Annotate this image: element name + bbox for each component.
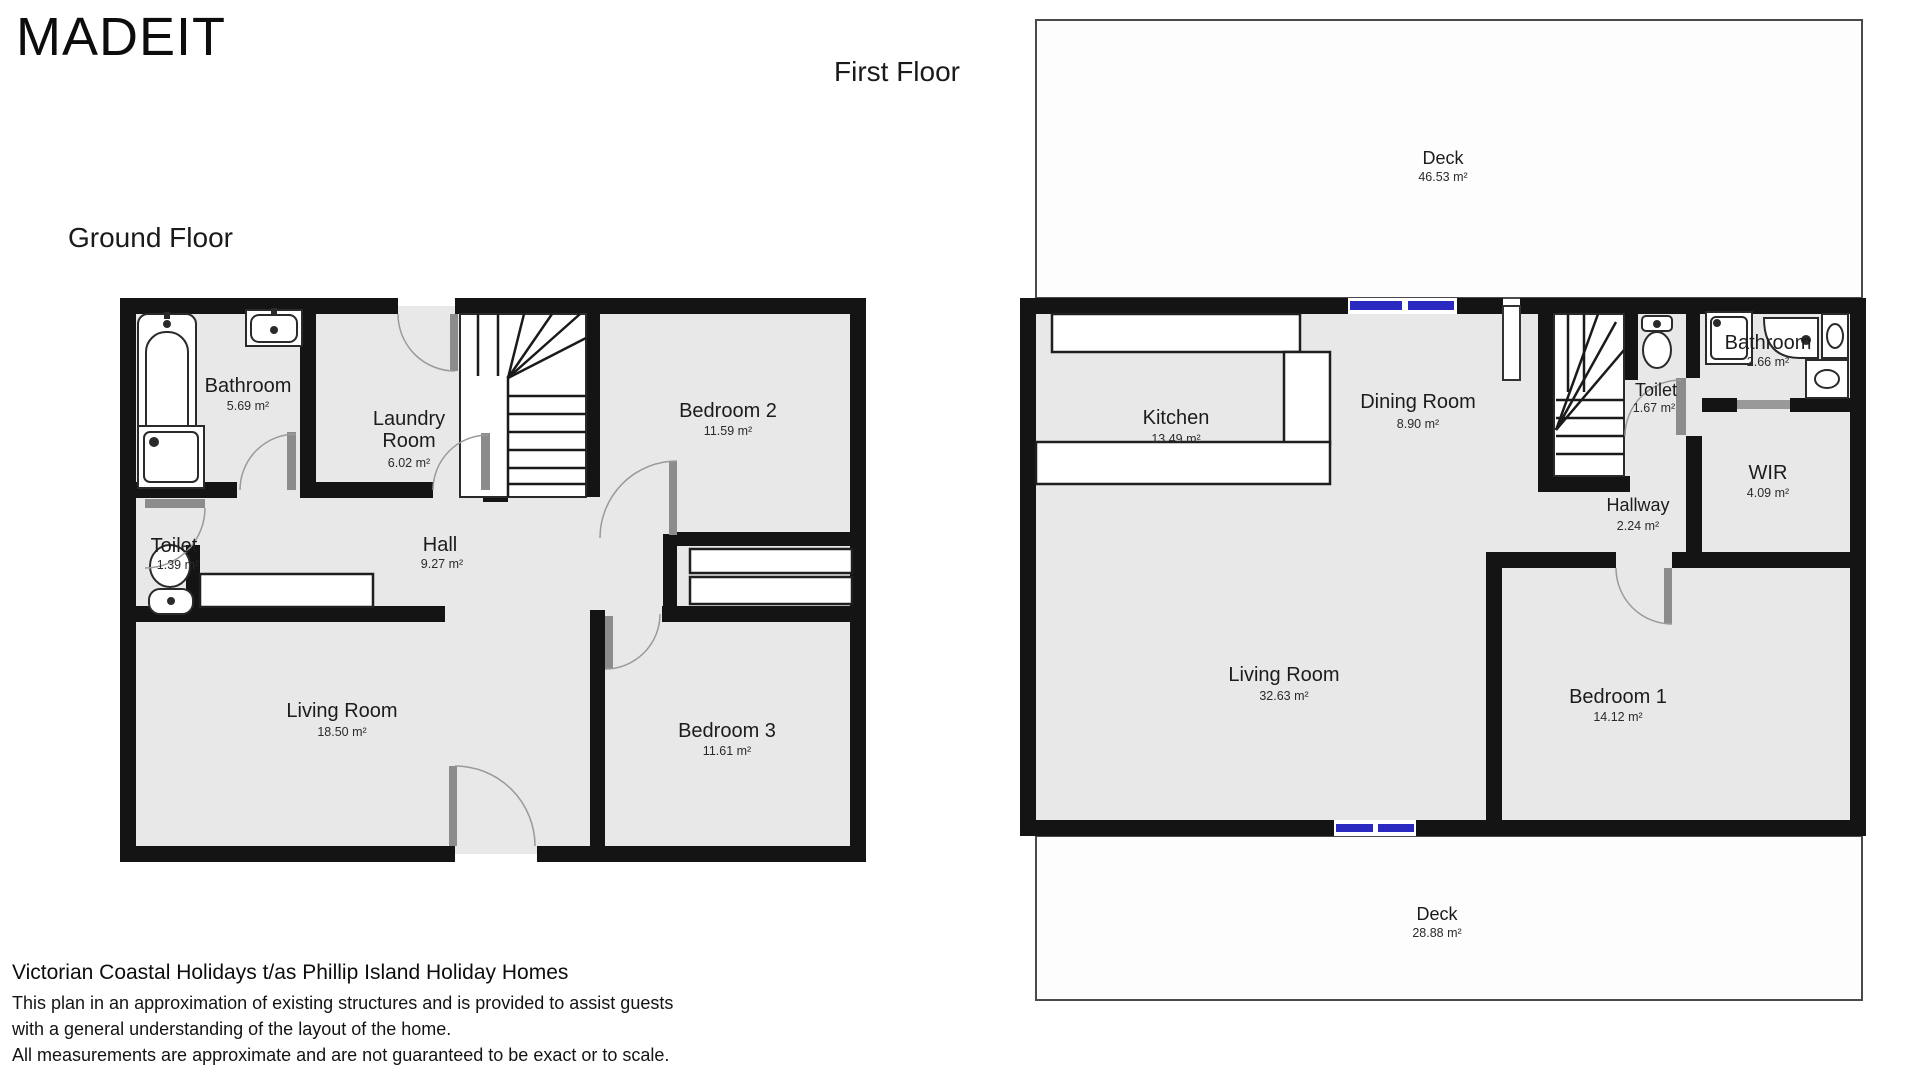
ff-toilet-area: 1.67 m² xyxy=(1633,401,1675,415)
gf-bedroom2-area: 11.59 m² xyxy=(704,424,752,438)
ground-floor-plan: Bathroom 5.69 m² Laundry Room 6.02 m² Be… xyxy=(120,298,866,862)
ff-deck-bottom-label: Deck xyxy=(1416,904,1458,924)
ff-deck-top-label: Deck xyxy=(1422,148,1464,168)
gf-bedroom3-area: 11.61 m² xyxy=(703,744,751,758)
footer-company-name: Victorian Coastal Holidays t/as Phillip … xyxy=(12,960,673,986)
first-floor-plan: Deck 46.53 m² Kitchen 13.49 m² Dining Ro… xyxy=(1020,20,1866,1000)
gf-bathroom-area: 5.69 m² xyxy=(227,399,269,413)
ff-bathroom-label: Bathroom xyxy=(1725,332,1812,354)
gf-hall-area: 9.27 m² xyxy=(421,557,463,571)
ff-wir-area: 4.09 m² xyxy=(1747,486,1789,500)
ground-floor-stairs xyxy=(460,314,586,497)
ff-wir-label: WIR xyxy=(1749,462,1788,484)
gf-toilet-area: 1.39 m² xyxy=(157,558,199,572)
ff-living-area: 32.63 m² xyxy=(1259,689,1308,703)
toilet-fixture-first xyxy=(1642,316,1672,368)
gf-laundry-label-line2: Room xyxy=(382,430,435,452)
gf-living-area: 18.50 m² xyxy=(317,725,366,739)
ff-bathroom-area: 2.66 m² xyxy=(1747,355,1789,369)
ff-deck-top-area: 46.53 m² xyxy=(1418,170,1467,184)
footer-disclaimer-line1: This plan in an approximation of existin… xyxy=(12,990,673,1016)
gf-laundry-area: 6.02 m² xyxy=(388,456,430,470)
ff-living-label: Living Room xyxy=(1228,664,1339,686)
footer-disclaimer-line2: with a general understanding of the layo… xyxy=(12,1016,673,1042)
gf-toilet-label: Toilet xyxy=(151,535,198,557)
ff-toilet-label: Toilet xyxy=(1635,380,1677,400)
ff-hallway-label: Hallway xyxy=(1606,495,1669,515)
gf-living-label: Living Room xyxy=(286,700,397,722)
ff-kitchen-label: Kitchen xyxy=(1143,407,1210,429)
ff-dining-label: Dining Room xyxy=(1360,391,1476,413)
gf-laundry-label-line1: Laundry xyxy=(373,408,445,430)
ff-hallway-area: 2.24 m² xyxy=(1617,519,1659,533)
ff-kitchen-area: 13.49 m² xyxy=(1151,432,1200,446)
floor-plan-page: MADEIT Ground Floor First Floor xyxy=(0,0,1920,1080)
footer-disclaimer-line3: All measurements are approximate and are… xyxy=(12,1042,673,1068)
footer: Victorian Coastal Holidays t/as Phillip … xyxy=(12,960,673,1068)
first-floor-stairs xyxy=(1554,314,1624,476)
floor-plan-drawing: Bathroom 5.69 m² Laundry Room 6.02 m² Be… xyxy=(0,0,1920,1080)
ff-bedroom1-area: 14.12 m² xyxy=(1593,710,1642,724)
ff-deck-bottom-area: 28.88 m² xyxy=(1412,926,1461,940)
bathroom-sink-fixture xyxy=(246,308,302,346)
gf-bedroom3-label: Bedroom 3 xyxy=(678,720,776,742)
ff-bedroom1-label: Bedroom 1 xyxy=(1569,686,1667,708)
gf-hall-label: Hall xyxy=(423,534,457,556)
gf-bathroom-label: Bathroom xyxy=(205,375,292,397)
ff-dining-area: 8.90 m² xyxy=(1397,417,1439,431)
gf-bedroom2-label: Bedroom 2 xyxy=(679,400,777,422)
shower-fixture xyxy=(138,426,204,488)
